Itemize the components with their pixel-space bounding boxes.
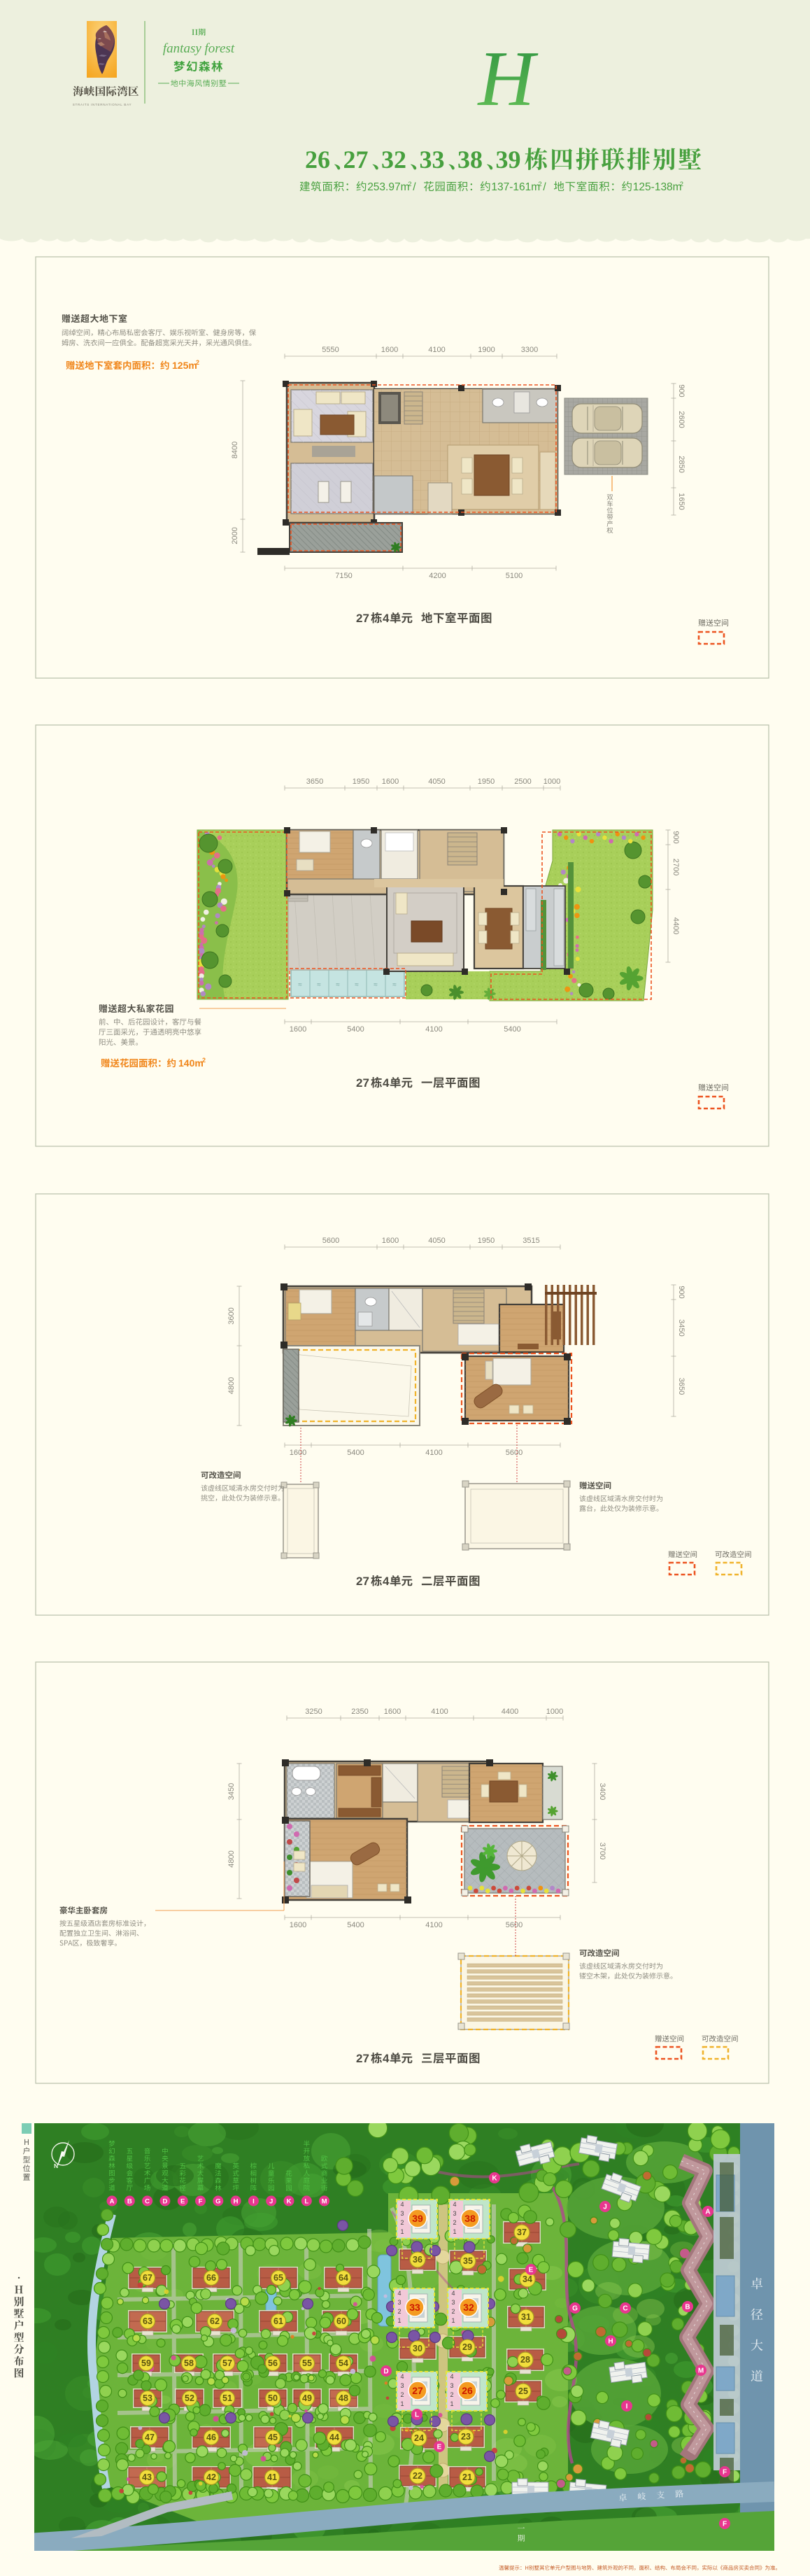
svg-text:H: H bbox=[234, 2198, 239, 2206]
svg-text:27: 27 bbox=[412, 2385, 423, 2396]
svg-text:38: 38 bbox=[457, 146, 483, 174]
svg-text:5100: 5100 bbox=[506, 572, 523, 580]
svg-text:1950: 1950 bbox=[478, 777, 495, 786]
svg-text:2700: 2700 bbox=[672, 859, 680, 875]
svg-text:39: 39 bbox=[412, 2213, 423, 2224]
svg-text:5400: 5400 bbox=[504, 1025, 520, 1034]
svg-text:900: 900 bbox=[677, 1286, 685, 1298]
svg-text:3515: 3515 bbox=[523, 1237, 539, 1245]
svg-text:/: / bbox=[413, 181, 416, 193]
svg-text:3650: 3650 bbox=[677, 1378, 685, 1395]
svg-text:F: F bbox=[723, 2521, 727, 2528]
svg-text:3450: 3450 bbox=[677, 1319, 685, 1336]
svg-text:27: 27 bbox=[356, 2052, 369, 2065]
svg-text:23: 23 bbox=[461, 2432, 471, 2442]
svg-text:J: J bbox=[603, 2204, 607, 2211]
svg-text:2600: 2600 bbox=[677, 411, 685, 428]
svg-text:≈: ≈ bbox=[374, 981, 378, 989]
svg-text:27: 27 bbox=[356, 612, 369, 625]
svg-text:≈: ≈ bbox=[355, 981, 359, 989]
svg-text:H: H bbox=[477, 36, 539, 122]
svg-text:3600: 3600 bbox=[227, 1307, 236, 1324]
svg-text:26: 26 bbox=[305, 146, 330, 174]
svg-text:4100: 4100 bbox=[428, 346, 445, 354]
svg-text:50: 50 bbox=[268, 2393, 278, 2403]
svg-text:32: 32 bbox=[381, 146, 406, 174]
svg-text:I: I bbox=[253, 2198, 255, 2206]
svg-text:22: 22 bbox=[413, 2471, 422, 2481]
svg-text:C: C bbox=[623, 2305, 627, 2313]
svg-text:125-138m: 125-138m bbox=[633, 181, 682, 193]
svg-text:4: 4 bbox=[383, 1575, 390, 1588]
svg-text:3: 3 bbox=[397, 2299, 401, 2306]
svg-text:≈: ≈ bbox=[298, 981, 302, 989]
svg-text:D: D bbox=[383, 2368, 388, 2376]
svg-text:42: 42 bbox=[206, 2472, 216, 2482]
svg-text:900: 900 bbox=[672, 831, 680, 843]
svg-text:45: 45 bbox=[268, 2433, 278, 2442]
svg-text:137-161m: 137-161m bbox=[491, 181, 540, 193]
svg-text:28: 28 bbox=[520, 2355, 530, 2365]
svg-text:L: L bbox=[304, 2198, 308, 2206]
svg-text:C: C bbox=[145, 2198, 150, 2206]
svg-text:2: 2 bbox=[680, 181, 683, 188]
svg-text:52: 52 bbox=[185, 2393, 194, 2403]
svg-text:47: 47 bbox=[145, 2433, 155, 2442]
svg-text:900: 900 bbox=[677, 384, 685, 397]
svg-text:2: 2 bbox=[202, 1057, 206, 1064]
svg-text:4100: 4100 bbox=[425, 1025, 442, 1034]
svg-text:29: 29 bbox=[462, 2342, 472, 2352]
svg-text:≈: ≈ bbox=[317, 981, 321, 989]
svg-text:1000: 1000 bbox=[543, 777, 560, 786]
svg-text:53: 53 bbox=[143, 2393, 152, 2403]
svg-text:5600: 5600 bbox=[322, 1237, 339, 1245]
svg-text:D: D bbox=[162, 2198, 167, 2206]
svg-text:27: 27 bbox=[356, 1076, 369, 1090]
svg-text:33: 33 bbox=[420, 146, 445, 174]
svg-text:1: 1 bbox=[400, 2228, 404, 2235]
svg-text:4: 4 bbox=[400, 2373, 404, 2380]
svg-text:A: A bbox=[705, 2209, 710, 2216]
svg-text:3300: 3300 bbox=[521, 346, 538, 354]
svg-text:54: 54 bbox=[339, 2358, 348, 2368]
svg-text:36: 36 bbox=[413, 2255, 422, 2265]
svg-text:66: 66 bbox=[206, 2273, 216, 2283]
svg-text:67: 67 bbox=[143, 2273, 152, 2283]
svg-text:2850: 2850 bbox=[677, 456, 685, 472]
svg-text:4800: 4800 bbox=[227, 1377, 236, 1394]
svg-text:46: 46 bbox=[206, 2433, 216, 2442]
svg-text:E: E bbox=[180, 2198, 185, 2206]
svg-text:4: 4 bbox=[383, 2052, 390, 2065]
svg-text:4: 4 bbox=[453, 2201, 456, 2208]
svg-text:1: 1 bbox=[453, 2228, 456, 2235]
svg-text:F: F bbox=[723, 2469, 727, 2477]
svg-text:/: / bbox=[543, 181, 546, 193]
svg-text:32: 32 bbox=[463, 2302, 474, 2313]
svg-text:4: 4 bbox=[383, 1076, 390, 1090]
svg-text:2350: 2350 bbox=[351, 1708, 368, 1716]
svg-text:21: 21 bbox=[462, 2472, 472, 2482]
svg-text:1600: 1600 bbox=[290, 1449, 306, 1457]
svg-text:E: E bbox=[529, 2267, 534, 2274]
svg-text:59: 59 bbox=[141, 2358, 151, 2368]
svg-text:E: E bbox=[437, 2444, 442, 2451]
svg-text:STRAITS INTERNATIONAL BAY: STRAITS INTERNATIONAL BAY bbox=[73, 103, 132, 106]
svg-text:38: 38 bbox=[464, 2213, 476, 2224]
svg-text:K: K bbox=[287, 2198, 292, 2206]
svg-text:4: 4 bbox=[450, 2373, 453, 2380]
svg-text:A: A bbox=[110, 2198, 115, 2206]
svg-text:2000: 2000 bbox=[231, 527, 239, 544]
svg-text:I: I bbox=[626, 2403, 628, 2411]
svg-text:41: 41 bbox=[267, 2472, 277, 2482]
svg-text:4100: 4100 bbox=[425, 1921, 442, 1929]
svg-text:1900: 1900 bbox=[478, 346, 495, 354]
svg-text:4400: 4400 bbox=[672, 917, 680, 934]
svg-text:4: 4 bbox=[383, 612, 390, 625]
svg-text:31: 31 bbox=[521, 2312, 531, 2322]
svg-text:2: 2 bbox=[453, 2219, 456, 2226]
svg-text:5400: 5400 bbox=[347, 1449, 364, 1457]
svg-text:27: 27 bbox=[356, 1575, 369, 1588]
svg-text:3: 3 bbox=[453, 2210, 456, 2217]
svg-text:4: 4 bbox=[400, 2201, 404, 2208]
svg-text:3650: 3650 bbox=[306, 777, 323, 786]
svg-text:4400: 4400 bbox=[502, 1708, 518, 1716]
svg-text:2500: 2500 bbox=[514, 777, 531, 786]
svg-text:8400: 8400 bbox=[231, 442, 239, 458]
svg-text:253.97m: 253.97m bbox=[367, 181, 409, 193]
svg-text:M: M bbox=[698, 2367, 704, 2375]
svg-text:F: F bbox=[199, 2198, 203, 2206]
svg-text:fantasy forest: fantasy forest bbox=[163, 41, 235, 56]
svg-text:4050: 4050 bbox=[428, 777, 445, 786]
svg-text:5400: 5400 bbox=[347, 1025, 364, 1034]
svg-text:≈: ≈ bbox=[392, 981, 397, 989]
svg-text:4100: 4100 bbox=[425, 1449, 442, 1457]
svg-text:49: 49 bbox=[302, 2393, 312, 2403]
svg-text:4100: 4100 bbox=[431, 1708, 448, 1716]
svg-text:5600: 5600 bbox=[506, 1921, 523, 1929]
svg-text:33: 33 bbox=[409, 2302, 420, 2313]
svg-text:1: 1 bbox=[450, 2400, 453, 2407]
svg-text:3450: 3450 bbox=[227, 1783, 236, 1800]
svg-text:5550: 5550 bbox=[322, 346, 339, 354]
svg-text:3400: 3400 bbox=[598, 1783, 606, 1800]
svg-text:2: 2 bbox=[538, 181, 541, 188]
svg-text:4800: 4800 bbox=[227, 1850, 236, 1867]
svg-text:B: B bbox=[685, 2304, 690, 2311]
svg-text:1650: 1650 bbox=[677, 493, 685, 509]
svg-text:3: 3 bbox=[450, 2382, 453, 2389]
svg-text:7150: 7150 bbox=[335, 572, 352, 580]
svg-text:61: 61 bbox=[273, 2316, 283, 2326]
svg-text:1950: 1950 bbox=[478, 1237, 495, 1245]
svg-text:39: 39 bbox=[496, 146, 521, 174]
svg-text:M: M bbox=[322, 2198, 327, 2206]
svg-text:2: 2 bbox=[400, 2219, 404, 2226]
svg-text:37: 37 bbox=[517, 2227, 527, 2237]
svg-text:1600: 1600 bbox=[382, 1237, 399, 1245]
svg-text:26: 26 bbox=[462, 2385, 473, 2396]
svg-text:B: B bbox=[127, 2198, 132, 2206]
svg-text:1600: 1600 bbox=[381, 346, 398, 354]
svg-text:43: 43 bbox=[142, 2472, 152, 2482]
svg-text:65: 65 bbox=[273, 2273, 283, 2283]
svg-text:1600: 1600 bbox=[290, 1921, 306, 1929]
svg-text:K: K bbox=[492, 2175, 497, 2183]
svg-text:48: 48 bbox=[339, 2393, 348, 2403]
svg-text:G: G bbox=[572, 2305, 578, 2313]
svg-text:1: 1 bbox=[451, 2317, 455, 2324]
svg-text:3: 3 bbox=[400, 2382, 404, 2389]
svg-text:L: L bbox=[415, 2412, 419, 2419]
svg-text:2: 2 bbox=[196, 359, 199, 366]
svg-text:N: N bbox=[54, 2162, 58, 2169]
svg-text:55: 55 bbox=[302, 2358, 312, 2368]
svg-text:34: 34 bbox=[523, 2274, 532, 2284]
svg-text:1600: 1600 bbox=[290, 1025, 306, 1034]
svg-text:44: 44 bbox=[329, 2433, 339, 2442]
svg-text:H: H bbox=[608, 2338, 613, 2346]
svg-text:24: 24 bbox=[414, 2433, 424, 2443]
svg-text:2: 2 bbox=[451, 2308, 455, 2315]
svg-text:51: 51 bbox=[222, 2393, 232, 2403]
svg-text:60: 60 bbox=[336, 2316, 346, 2326]
svg-text:3700: 3700 bbox=[598, 1843, 606, 1859]
svg-text:4: 4 bbox=[397, 2290, 401, 2297]
svg-text:140m: 140m bbox=[178, 1057, 204, 1069]
svg-text:56: 56 bbox=[268, 2358, 278, 2368]
svg-text:62: 62 bbox=[210, 2316, 220, 2326]
svg-text:64: 64 bbox=[339, 2273, 348, 2283]
svg-text:5400: 5400 bbox=[347, 1921, 364, 1929]
svg-text:G: G bbox=[215, 2198, 220, 2206]
svg-text:58: 58 bbox=[184, 2358, 194, 2368]
svg-text:3: 3 bbox=[451, 2299, 455, 2306]
svg-text:1: 1 bbox=[400, 2400, 404, 2407]
svg-text:35: 35 bbox=[463, 2256, 473, 2266]
svg-text:4: 4 bbox=[451, 2290, 455, 2297]
svg-text:2: 2 bbox=[450, 2391, 453, 2398]
svg-text:1: 1 bbox=[397, 2317, 401, 2324]
svg-text:2: 2 bbox=[397, 2308, 401, 2315]
svg-text:1950: 1950 bbox=[353, 777, 369, 786]
svg-text:3: 3 bbox=[400, 2210, 404, 2217]
svg-text:25: 25 bbox=[518, 2386, 528, 2396]
svg-text:3250: 3250 bbox=[305, 1708, 322, 1716]
svg-text:5600: 5600 bbox=[506, 1449, 523, 1457]
svg-text:125m: 125m bbox=[172, 360, 197, 371]
svg-text:1000: 1000 bbox=[546, 1708, 563, 1716]
svg-text:≈: ≈ bbox=[336, 981, 340, 989]
svg-text:1600: 1600 bbox=[382, 777, 399, 786]
svg-text:4050: 4050 bbox=[428, 1237, 445, 1245]
svg-text:4200: 4200 bbox=[429, 572, 446, 580]
svg-text:1600: 1600 bbox=[384, 1708, 401, 1716]
svg-text:2: 2 bbox=[400, 2391, 404, 2398]
svg-text:57: 57 bbox=[222, 2358, 232, 2368]
svg-text:2: 2 bbox=[408, 181, 411, 188]
svg-text:J: J bbox=[269, 2198, 273, 2206]
svg-text:63: 63 bbox=[143, 2316, 152, 2326]
svg-text:27: 27 bbox=[343, 146, 369, 174]
svg-text:30: 30 bbox=[413, 2344, 422, 2353]
